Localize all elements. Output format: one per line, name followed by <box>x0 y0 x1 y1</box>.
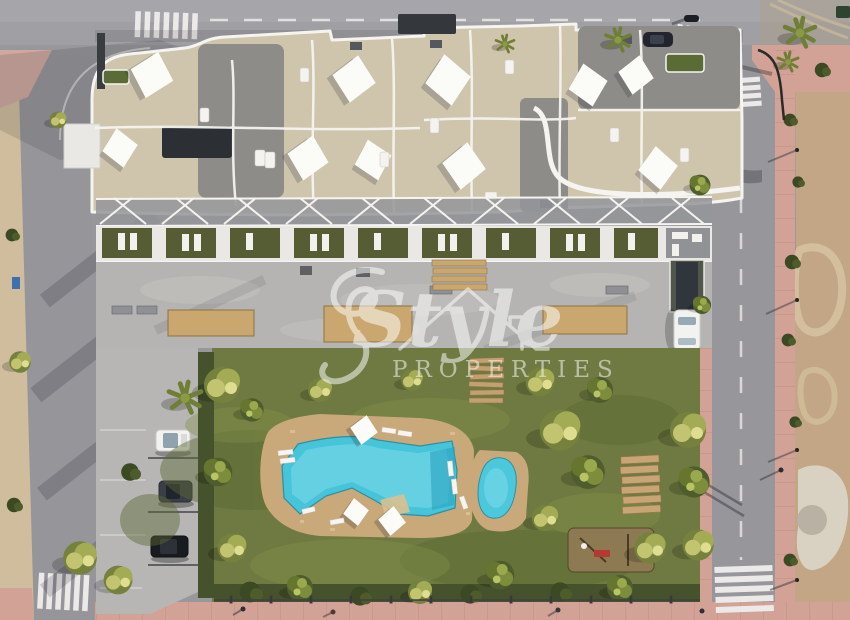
sidewalk-corner-bottom-left <box>0 588 34 620</box>
logo-word: Style <box>352 275 563 364</box>
pergola-band <box>96 197 712 228</box>
logo-subtitle: PROPERTIES <box>392 357 620 383</box>
aerial-site-render: Style PROPERTIES <box>0 0 850 620</box>
roof-shaft-dark <box>162 126 232 158</box>
pool-deep-end <box>430 447 455 510</box>
recycling-bin <box>12 277 20 289</box>
terrace-row <box>96 226 712 262</box>
motorbike <box>684 15 699 22</box>
kids-pool-highlight <box>484 468 508 508</box>
play-equipment <box>594 550 610 557</box>
green-roof-right <box>666 54 704 72</box>
rubble-stone <box>797 505 827 535</box>
dumpster <box>836 6 850 18</box>
stair-bulkhead <box>398 14 456 34</box>
gravel-roof-left <box>198 44 284 198</box>
roof-white-box <box>64 124 100 168</box>
